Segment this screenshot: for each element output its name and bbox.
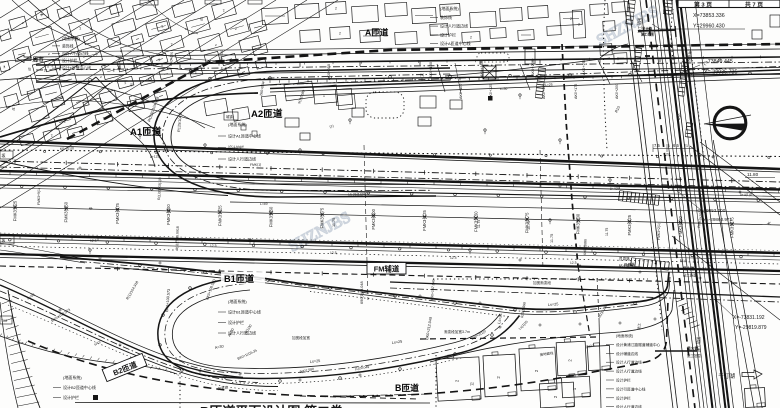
svg-text:B匝道: B匝道 <box>395 382 419 393</box>
svg-text:设计护栏: 设计护栏 <box>63 394 79 400</box>
svg-text:砧土: 砧土 <box>680 258 688 263</box>
svg-text:11.75: 11.75 <box>477 220 481 228</box>
svg-text:(地面系统): (地面系统) <box>63 374 82 380</box>
svg-text:FMK3+100: FMK3+100 <box>371 208 376 229</box>
svg-text:FMK3+9(1): FMK3+9(1) <box>37 188 41 205</box>
svg-text:12.5: 12.5 <box>90 239 97 243</box>
svg-text:(1): (1) <box>420 73 424 77</box>
svg-text:AK0+100: AK0+100 <box>459 84 463 99</box>
svg-text:1: 1 <box>686 144 688 148</box>
svg-text:0+4(1)5: 0+4(1)5 <box>740 193 752 197</box>
svg-text:设计护栏: 设计护栏 <box>440 31 456 37</box>
svg-text:B匝道平面设计图 第二卷: B匝道平面设计图 第二卷 <box>200 404 344 408</box>
svg-text:2: 2 <box>60 92 62 96</box>
svg-text:第 3 页: 第 3 页 <box>694 0 712 8</box>
svg-text:坂: 坂 <box>2 237 6 243</box>
svg-text:6.5: 6.5 <box>673 143 679 148</box>
svg-text:TK2: TK2 <box>1 319 7 323</box>
svg-text:AK0+100: AK0+100 <box>428 61 433 78</box>
svg-text:设计护栏: 设计护栏 <box>62 58 77 63</box>
svg-text:11.75: 11.75 <box>527 221 531 230</box>
svg-text:设计护栏: 设计护栏 <box>616 395 631 400</box>
svg-text:设计黄浦江路隧道辅道中心: 设计黄浦江路隧道辅道中心 <box>616 342 661 347</box>
svg-text:(地面系统): (地面系统) <box>228 121 247 127</box>
svg-text:K0+0(1)0: K0+0(1)0 <box>60 146 74 151</box>
svg-text:2: 2 <box>48 52 50 56</box>
svg-text:L=25: L=25 <box>545 83 553 87</box>
svg-text:渐变段加宽3.7m: 渐变段加宽3.7m <box>444 329 470 334</box>
svg-text:砧土路面: 砧土路面 <box>619 263 634 268</box>
svg-text:施工范围: 施工范围 <box>687 353 701 358</box>
svg-text:加宽渐变段: 加宽渐变段 <box>533 280 551 285</box>
svg-text:FM辅道: FM辅道 <box>374 264 400 273</box>
svg-text:住: 住 <box>200 16 203 21</box>
svg-text:12.5: 12.5 <box>210 244 217 248</box>
svg-text:吴大路: 吴大路 <box>687 346 699 351</box>
svg-text:11.75: 11.75 <box>550 234 554 243</box>
svg-text:设计B2匝道中心线: 设计B2匝道中心线 <box>63 384 96 390</box>
svg-text:FMK3+975: FMK3+975 <box>115 202 120 223</box>
svg-text:2: 2 <box>22 21 24 25</box>
svg-text:7.5: 7.5 <box>654 143 660 148</box>
svg-text:设计人行道边线: 设计人行道边线 <box>616 369 642 374</box>
svg-text:(地面系统): (地面系统) <box>62 36 80 41</box>
svg-text:设计人行道边线: 设计人行道边线 <box>616 404 642 408</box>
svg-text:FMK3+950: FMK3+950 <box>64 201 69 222</box>
svg-text:设计人行道边线: 设计人行道边线 <box>62 51 89 56</box>
svg-text:11.75: 11.75 <box>605 228 609 236</box>
svg-text:12.5: 12.5 <box>450 256 457 260</box>
svg-text:B1匝道: B1匝道 <box>224 273 255 284</box>
svg-text:平: 平 <box>130 83 133 87</box>
svg-text:1: 1 <box>668 144 670 148</box>
svg-text:城镇: 城镇 <box>226 114 233 119</box>
svg-text:FMK3+250: FMK3+250 <box>678 215 683 236</box>
svg-text:11.80: 11.80 <box>747 172 759 177</box>
svg-text:加宽段加宽: 加宽段加宽 <box>292 335 310 340</box>
svg-text:FMK3+200: FMK3+200 <box>576 213 581 234</box>
svg-text:FMK3+225: FMK3+225 <box>627 214 632 235</box>
svg-text:FMK3+075: FMK3+075 <box>320 207 325 228</box>
svg-text:2: 2 <box>339 32 341 36</box>
svg-text:2: 2 <box>70 115 72 119</box>
svg-text:周市: 周市 <box>33 56 45 64</box>
svg-text:设计护栏: 设计护栏 <box>616 378 631 383</box>
svg-text:施工范围: 施工范围 <box>641 32 654 37</box>
svg-text:设计护栏: 设计护栏 <box>228 144 244 150</box>
svg-text:FMK3+000: FMK3+000 <box>166 204 171 225</box>
svg-text:FMK3+050: FMK3+050 <box>269 206 274 227</box>
svg-text:A匝道: A匝道 <box>365 27 389 38</box>
svg-text:Y=29960.430: Y=29960.430 <box>693 24 725 30</box>
svg-text:1: 1 <box>323 94 325 98</box>
svg-text:千灯湖: 千灯湖 <box>718 372 735 380</box>
svg-text:(地面系统): (地面系统) <box>616 333 633 338</box>
svg-text:2: 2 <box>215 43 217 47</box>
svg-text:AK0+050: AK0+050 <box>326 63 331 80</box>
svg-text:设计A1匝道中心线: 设计A1匝道中心线 <box>228 133 261 139</box>
svg-text:AK0+250: AK0+250 <box>581 58 586 75</box>
svg-text:Ls=25: Ls=25 <box>548 302 559 307</box>
svg-text:AK0+200: AK0+200 <box>615 84 619 99</box>
svg-text:2: 2 <box>570 17 572 21</box>
svg-text:(地面系统): (地面系统) <box>440 5 459 11</box>
svg-text:AK0+175: AK0+175 <box>574 84 578 99</box>
svg-text:FMK(1): FMK(1) <box>250 163 261 167</box>
svg-text:砧土路面: 砧土路面 <box>683 273 697 278</box>
svg-text:设计人行道边线: 设计人行道边线 <box>616 360 642 365</box>
svg-text:坂: 坂 <box>2 152 6 158</box>
svg-text:艮泉路: 艮泉路 <box>619 256 630 261</box>
svg-text:设计辅道边线: 设计辅道边线 <box>616 351 638 356</box>
svg-text:施工: 施工 <box>636 322 642 330</box>
svg-text:A2匝道: A2匝道 <box>251 108 283 120</box>
svg-text:设计护栏: 设计护栏 <box>228 319 244 325</box>
svg-text:吴大路: 吴大路 <box>683 266 695 271</box>
svg-text:2: 2 <box>150 37 152 41</box>
svg-text:2: 2 <box>235 27 237 31</box>
svg-text:Y=-29819.879: Y=-29819.879 <box>735 325 767 331</box>
svg-text:FMK3+125: FMK3+125 <box>422 210 427 231</box>
svg-text:12.5: 12.5 <box>330 251 337 255</box>
svg-text:Y=-29935.735: Y=-29935.735 <box>704 70 737 76</box>
svg-text:FMK3+2(1): FMK3+2(1) <box>657 223 661 240</box>
svg-text:设计B1匝道中心线: 设计B1匝道中心线 <box>228 309 261 315</box>
svg-text:0+425: 0+425 <box>610 186 620 190</box>
svg-text:平: 平 <box>95 52 98 56</box>
svg-text:2: 2 <box>120 49 122 53</box>
svg-text:AK0+200: AK0+200 <box>530 59 535 76</box>
svg-text:x=30: x=30 <box>500 87 508 91</box>
svg-text:-73849.445: -73849.445 <box>706 59 733 65</box>
svg-text:(1): (1) <box>470 382 474 386</box>
svg-text:设计人行道边线: 设计人行道边线 <box>440 23 468 29</box>
svg-text:12.5: 12.5 <box>570 261 577 265</box>
svg-text:L=80: L=80 <box>260 202 268 206</box>
svg-text:(地面系统): (地面系统) <box>228 298 247 304</box>
svg-text:设计A匝道中心线: 设计A匝道中心线 <box>440 40 471 46</box>
svg-text:0+125: 0+125 <box>150 154 160 159</box>
svg-text:12.5: 12.5 <box>700 267 707 271</box>
svg-text:11.75: 11.75 <box>332 218 336 227</box>
svg-text:FMK3+025: FMK3+025 <box>217 205 222 226</box>
svg-text:FMK3+925: FMK3+925 <box>13 200 18 221</box>
svg-text:设计人行道边线: 设计人行道边线 <box>228 156 256 162</box>
svg-text:装饰线: 装饰线 <box>62 43 74 48</box>
svg-text:AK0+125: AK0+125 <box>489 84 493 99</box>
svg-text:Y=-29860.971: Y=-29860.971 <box>703 217 732 222</box>
svg-text:690(1)88.048: 690(1)88.048 <box>360 281 364 304</box>
svg-text:X=-73831.192: X=-73831.192 <box>733 315 765 321</box>
svg-text:20: 20 <box>666 153 670 157</box>
svg-text:共 7 页: 共 7 页 <box>745 0 763 8</box>
svg-text:X=73853.336: X=73853.336 <box>693 13 725 19</box>
svg-text:住: 住 <box>28 66 31 71</box>
svg-text:9(1)2.580.0918: 9(1)2.580.0918 <box>175 226 180 250</box>
svg-text:装饰线: 装饰线 <box>440 14 452 20</box>
svg-text:A1匝道: A1匝道 <box>130 126 162 138</box>
svg-text:设计引匝道中心线: 设计引匝道中心线 <box>616 386 646 391</box>
svg-text:2: 2 <box>100 75 102 79</box>
svg-text:690(1)080: 690(1)080 <box>583 239 588 255</box>
svg-text:2: 2 <box>335 7 337 11</box>
svg-text:2: 2 <box>470 36 472 40</box>
svg-text:0+350: 0+350 <box>452 180 462 184</box>
svg-text:坊: 坊 <box>12 106 15 111</box>
svg-text:2: 2 <box>578 23 580 27</box>
